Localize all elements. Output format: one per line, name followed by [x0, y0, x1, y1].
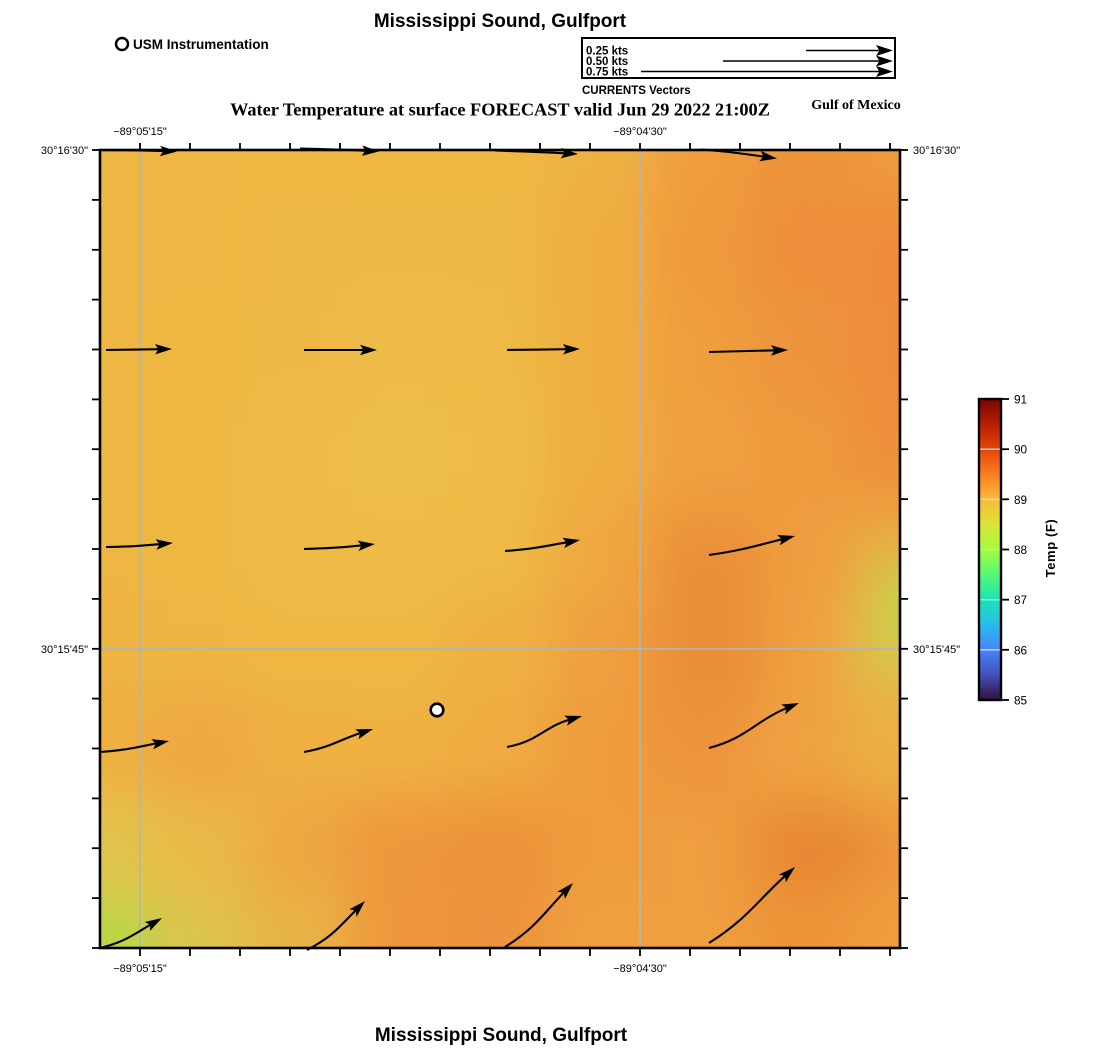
svg-text:−89°04'30": −89°04'30" — [613, 126, 667, 138]
svg-text:90: 90 — [1014, 443, 1028, 457]
svg-text:89: 89 — [1014, 493, 1027, 507]
svg-text:Mississippi Sound, Gulfport: Mississippi Sound, Gulfport — [374, 11, 627, 32]
svg-text:30°16'30": 30°16'30" — [41, 145, 88, 157]
svg-text:30°16'30": 30°16'30" — [913, 145, 960, 157]
svg-text:0.75 kts: 0.75 kts — [586, 67, 628, 79]
svg-text:CURRENTS Vectors: CURRENTS Vectors — [582, 85, 691, 97]
svg-text:Gulf of Mexico: Gulf of Mexico — [811, 98, 900, 113]
svg-text:−89°05'15": −89°05'15" — [113, 963, 167, 975]
svg-text:Temp (F): Temp (F) — [1043, 519, 1058, 578]
svg-text:86: 86 — [1014, 643, 1028, 657]
svg-text:−89°05'15": −89°05'15" — [113, 126, 167, 138]
svg-text:Mississippi Sound, Gulfport: Mississippi Sound, Gulfport — [375, 1025, 628, 1046]
svg-text:USM Instrumentation: USM Instrumentation — [133, 37, 269, 52]
svg-text:30°15'45": 30°15'45" — [41, 644, 88, 656]
svg-text:88: 88 — [1014, 543, 1028, 557]
svg-text:85: 85 — [1014, 694, 1028, 708]
svg-text:91: 91 — [1014, 393, 1027, 407]
svg-text:30°15'45": 30°15'45" — [913, 644, 960, 656]
svg-text:Water Temperature at surface F: Water Temperature at surface FORECAST va… — [230, 100, 770, 120]
svg-text:87: 87 — [1014, 593, 1027, 607]
svg-text:−89°04'30": −89°04'30" — [613, 963, 667, 975]
